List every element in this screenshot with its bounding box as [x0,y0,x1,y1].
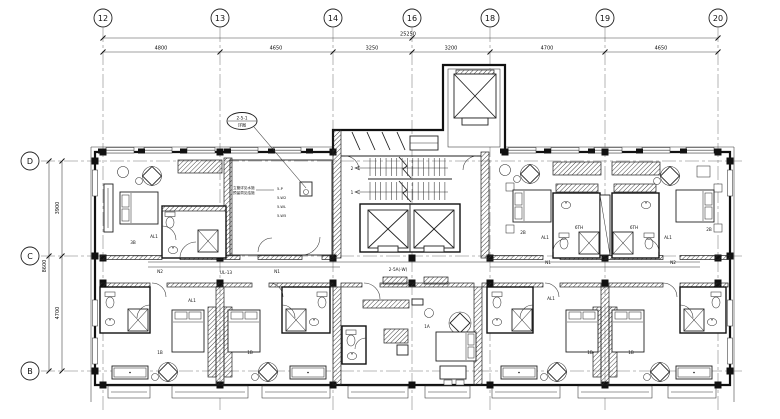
al1-tag: AL1 [541,235,549,240]
corridor-label-n1: N1 [274,269,280,274]
al1-tag: AL1 [188,298,196,303]
party-wall [216,287,224,385]
armchair [697,166,710,177]
callout-name: 详图 [238,122,246,129]
dim-top-total: 25250 [400,32,416,38]
core-wall-left [333,130,341,258]
corridor-label-ul13: UL-13 [220,270,232,275]
grid-bubble-14: 14 [324,9,342,27]
door-arc [463,156,477,170]
bed [120,192,158,224]
bed [566,310,598,352]
bathroom-pod-1: 6TH [553,184,600,258]
suite: 1A [342,283,476,385]
hatched-room: 2-5-1 详图 立管详见水施 预留洞见结施 5-P 5-W2 5-WL 5-W… [224,113,332,256]
bed [612,310,644,352]
dimensions-left: 8600 3900 4700 [42,159,65,374]
grid-label-C: C [27,252,33,261]
guest-rooms-top-right: 2B AL1 6TH 6TH 2B AL1 [500,162,723,258]
door-arc [302,237,320,255]
al1-tag: AL1 [664,235,672,240]
dim-bay-12-13: 4800 [155,46,168,52]
closet [384,329,408,343]
bath-label: 6TH [630,225,638,230]
core-wall-right [481,152,489,258]
dim-bay-16-18: 3200 [445,46,458,52]
closet [612,162,660,175]
dim-left-C-B: 4700 [55,307,61,320]
bathroom-pod-2: 6TH [612,184,659,258]
suite-bathroom [342,326,366,364]
guest-room-b2: 1B [224,283,330,382]
note-line-1: 立管详见水施 [233,185,255,190]
bed [172,310,204,352]
al1-tag: AL1 [150,234,158,239]
console [363,300,409,308]
stair-flight-label-2: 2 [351,166,354,171]
room-label: 3B [130,240,136,245]
bench [290,366,326,379]
room-label: 1A [424,324,430,329]
corridor-label-n2b: N2 [670,260,676,265]
planter [424,277,448,284]
dim-left-D-C: 3900 [55,202,61,215]
suite-dining [440,366,466,385]
dim-bay-18-19: 4700 [541,46,554,52]
grid-bubble-13: 13 [211,9,229,27]
grid-bubble-C: C [21,247,39,265]
guest-room-b1: 1B AL1 [100,283,216,382]
room-label: 1B [247,350,253,355]
nightstand [714,184,722,192]
grid-label-13: 13 [215,14,225,23]
bench [676,366,712,379]
grid-bubble-B: B [21,362,39,380]
vanity [556,184,598,192]
door-arc [545,283,559,297]
door-arc [364,283,380,299]
bathroom-top-left [162,206,226,258]
note-line-2: 预留洞见结施 [233,190,255,195]
room-label: 1B [157,350,163,355]
pipe-label-1: 5-P [277,187,284,191]
al1-tag: AL1 [547,296,555,301]
wardrobe [208,307,216,377]
guest-rooms-bottom: 1B AL1 1B 1B AL1 1B [100,283,726,385]
floor-plan-svg: 12 13 14 16 18 19 20 D C B 25250 4800 46… [0,0,780,419]
armchair [500,165,511,176]
core: 2 1 [333,69,500,258]
service-elevator [448,69,500,147]
dimensions-top: 25250 4800 4650 3250 3200 4700 4650 [101,32,721,55]
vestibule-shafts [352,132,438,150]
grid-label-20: 20 [713,14,723,23]
guest-room-b4: 1B [609,283,726,382]
vanity [614,184,656,192]
corridor-label-n1b: N1 [545,260,551,265]
service-elevator-door [462,118,488,125]
grid-bubble-19: 19 [596,9,614,27]
stair-flight-label-1: 1 [351,190,354,195]
grid-bubble-18: 18 [481,9,499,27]
door-arc [258,238,272,252]
side-table [425,309,434,318]
grid-label-B: B [27,367,33,376]
grid-label-14: 14 [328,14,338,23]
shaft-notes: 立管详见水施 预留洞见结施 5-P 5-W2 5-WL 5-W5 [233,185,286,218]
grid-label-12: 12 [98,14,108,23]
grid-bubble-16: 16 [403,9,421,27]
grid-label-D: D [27,157,33,166]
tv [412,299,423,305]
door-arc [152,283,166,297]
round-table [644,363,670,382]
closet [178,160,222,173]
armchair [118,167,129,178]
bed [676,190,714,222]
suite-wall-left [333,287,341,385]
room-label: 2B [706,227,712,232]
planter [383,277,407,284]
elevator-door [378,246,398,252]
closet [553,162,601,175]
suite-bed [436,332,476,361]
door-arc [663,283,677,297]
party-wall [601,287,609,385]
bath-label: 6TH [575,225,583,230]
elevator-door [424,246,444,252]
corridor-label-n2: N2 [157,269,163,274]
elevators [360,204,460,252]
grid-bubble-12: 12 [94,9,112,27]
dimension-ticks [101,36,721,55]
pipe-label-4: 5-W5 [277,214,286,218]
round-table [514,165,540,184]
round-table [252,363,278,382]
callout-ref: 2-5-1 [236,116,247,121]
bench [112,366,148,379]
room-label: 2B [520,230,526,235]
round-table [541,363,567,382]
pipe-label-3: 5-WL [277,205,286,209]
grid-label-16: 16 [407,14,417,23]
bench [501,366,537,379]
dim-bay-14-16: 3250 [366,46,379,52]
grid-label-19: 19 [600,14,610,23]
round-table [136,167,162,186]
dim-left-total: 8600 [42,260,48,273]
bed [513,190,551,222]
cabinet [397,345,408,355]
dim-bay-13-14: 4650 [270,46,283,52]
floor-plan-sheet: 12 13 14 16 18 19 20 D C B 25250 4800 46… [0,0,780,419]
dim-bay-19-20: 4650 [655,46,668,52]
pipe-label-2: 5-W2 [277,196,286,200]
guest-room-top-left: 3B AL1 [104,160,226,258]
sofa [104,184,113,232]
bed [228,310,260,352]
grid-bubble-D: D [21,152,39,170]
corridor-label-w: 2-5A(-W) [389,267,408,272]
stair: 2 1 [345,156,477,202]
nightstand [506,225,514,233]
room-label: 1B [628,350,634,355]
round-table [152,363,178,382]
grid-label-18: 18 [485,14,495,23]
room-label: 1B [587,350,593,355]
nightstand [714,224,722,232]
grid-bubble-20: 20 [709,9,727,27]
guest-room-b3: 1B AL1 [487,283,601,382]
